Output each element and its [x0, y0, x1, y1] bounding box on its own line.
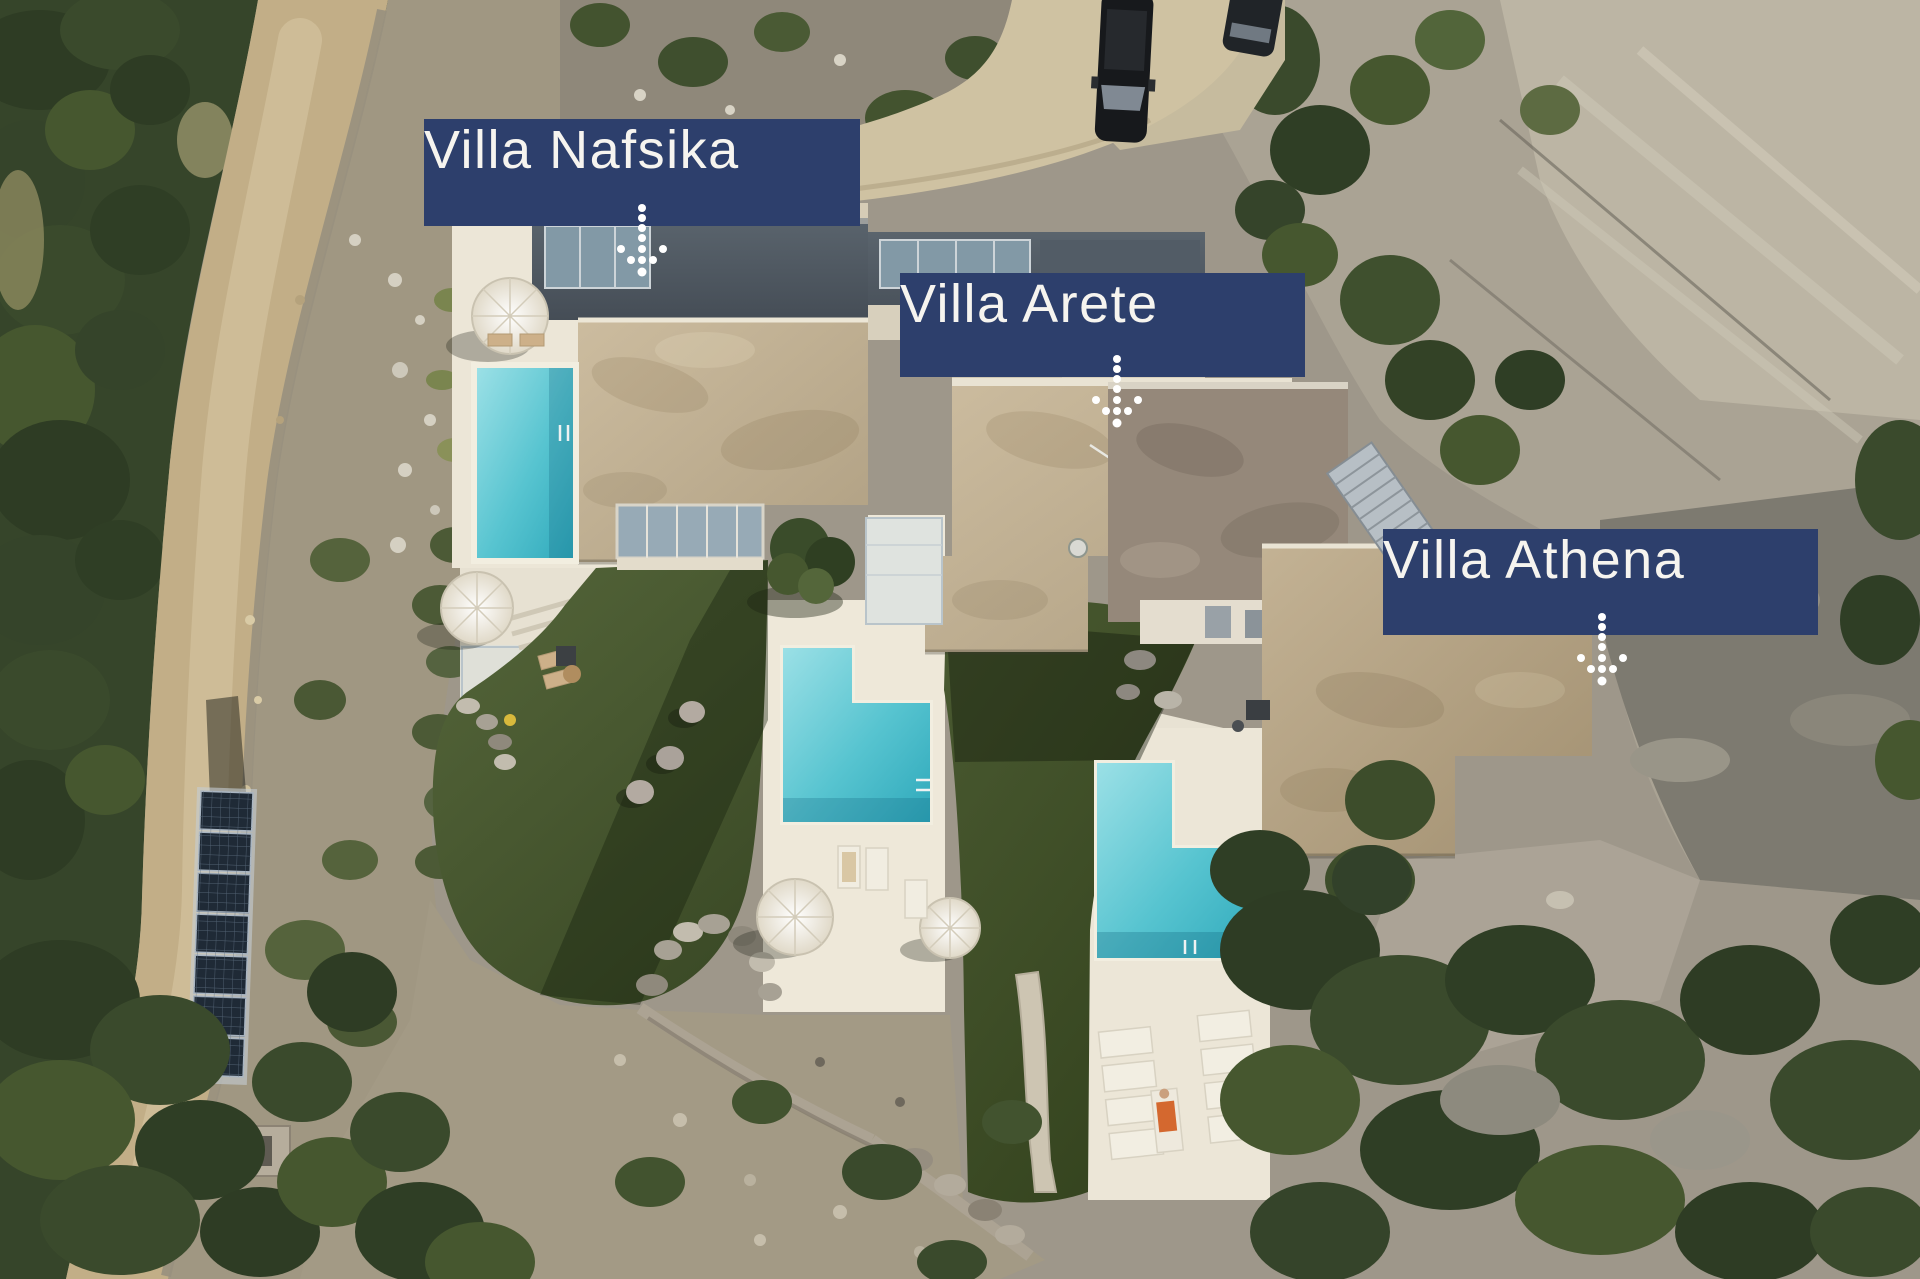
dotted-down-arrow-icon [1087, 355, 1147, 429]
aerial-photo: Villa Nafsika Villa Arete Villa Athena [0, 0, 1920, 1279]
skylight-courtyard [617, 505, 763, 570]
villa-label-nafsika-text: Villa Nafsika [424, 120, 740, 180]
dotted-down-arrow-icon [1572, 613, 1632, 687]
aerial-photo-scene [0, 0, 1920, 1279]
villa-label-arete-text: Villa Arete [900, 274, 1159, 334]
villa-label-athena-text: Villa Athena [1383, 530, 1685, 590]
dotted-down-arrow-icon [612, 204, 672, 278]
villa-arete-terrace [866, 518, 942, 624]
pool-nafsika [474, 365, 576, 561]
